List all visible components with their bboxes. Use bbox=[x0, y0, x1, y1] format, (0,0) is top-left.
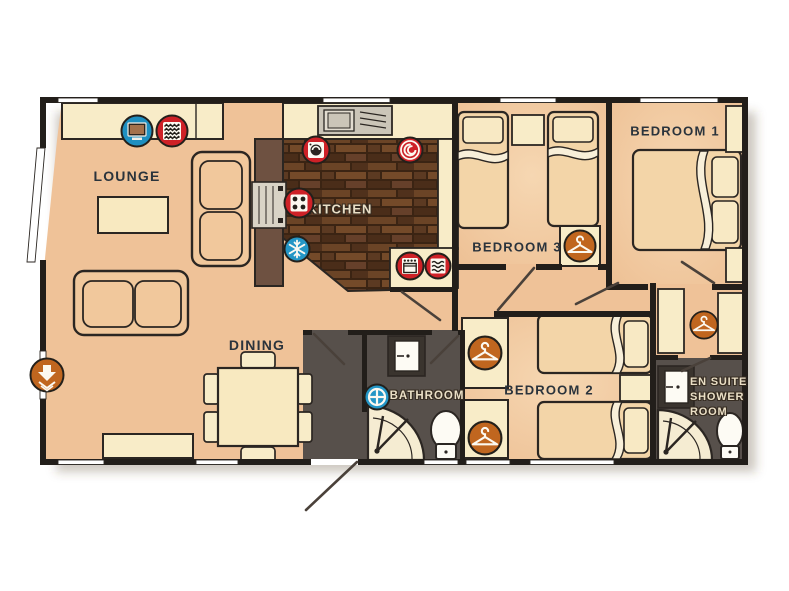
dining-chair bbox=[204, 412, 219, 442]
room-label-ensuite: EN SUITE SHOWER ROOM bbox=[690, 375, 747, 420]
bedside-table bbox=[620, 375, 652, 401]
heater-icon bbox=[424, 252, 452, 280]
wardrobe-hanger-icon bbox=[563, 229, 597, 263]
dining-table bbox=[218, 368, 298, 446]
microwave-icon bbox=[396, 136, 424, 164]
dining-chair bbox=[241, 352, 275, 369]
cabinet bbox=[726, 106, 744, 152]
bay-window bbox=[27, 148, 45, 262]
room-label-bedroom2: BEDROOM 2 bbox=[504, 383, 594, 398]
room-label-ensuite-line2: SHOWER bbox=[690, 390, 747, 405]
wardrobe bbox=[658, 289, 684, 353]
room-label-kitchen: KITCHEN bbox=[308, 202, 373, 217]
wardrobe bbox=[718, 293, 744, 353]
dining-chair bbox=[297, 374, 312, 404]
hob-icon bbox=[283, 187, 315, 219]
wardrobe-hanger-icon bbox=[689, 310, 719, 340]
room-label-dining: DINING bbox=[229, 337, 285, 353]
floorplan-canvas: LOUNGE KITCHEN DINING BATHROOM BEDROOM 1… bbox=[0, 0, 789, 591]
room-label-ensuite-line3: ROOM bbox=[690, 405, 747, 420]
pillow bbox=[624, 408, 648, 453]
bedside-table bbox=[512, 115, 544, 145]
cabinet bbox=[726, 248, 744, 282]
coffee-table bbox=[98, 197, 168, 233]
dining-furniture bbox=[204, 352, 312, 463]
lounge-unit bbox=[103, 434, 193, 458]
rear-door-opening bbox=[311, 459, 358, 465]
fire-icon bbox=[155, 114, 189, 148]
room-label-bedroom1: BEDROOM 1 bbox=[630, 124, 720, 139]
oven-icon bbox=[395, 251, 425, 281]
dining-chair bbox=[297, 412, 312, 442]
room-label-bathroom: BATHROOM bbox=[390, 390, 465, 402]
wardrobe-hanger-icon bbox=[467, 420, 503, 456]
pillow bbox=[712, 201, 738, 243]
room-label-bedroom3: BEDROOM 3 bbox=[472, 240, 562, 255]
floorplan bbox=[0, 0, 789, 591]
wardrobe-hanger-icon bbox=[467, 335, 503, 371]
tv-icon bbox=[120, 114, 154, 148]
entrance-door-icon bbox=[29, 357, 65, 393]
pillow bbox=[553, 117, 593, 142]
dining-chair bbox=[204, 374, 219, 404]
pillow bbox=[712, 157, 738, 197]
room-label-ensuite-line1: EN SUITE bbox=[690, 375, 747, 390]
washing-machine-icon bbox=[301, 135, 331, 165]
room-label-lounge: LOUNGE bbox=[93, 168, 160, 184]
pillow bbox=[624, 321, 648, 367]
fridge-freezer-icon bbox=[283, 235, 311, 263]
pillow bbox=[463, 117, 503, 143]
roof-vent-icon bbox=[363, 383, 391, 411]
